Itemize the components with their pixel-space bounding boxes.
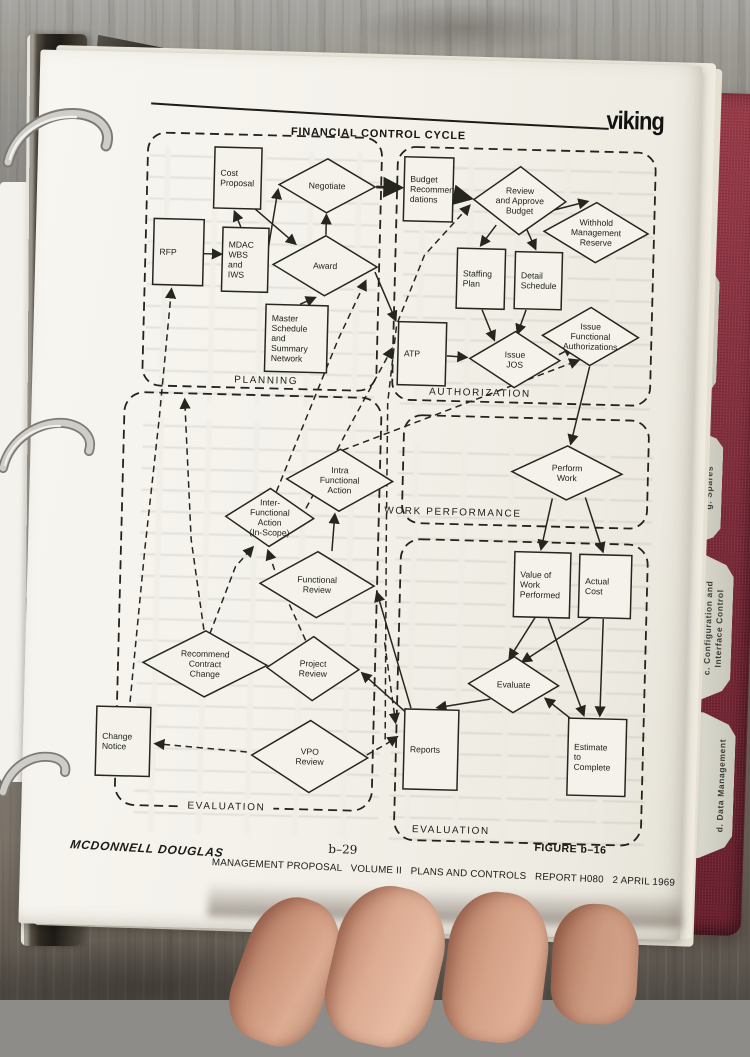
flow-arrow	[326, 215, 327, 235]
finger	[549, 902, 641, 1026]
node-label-issue_jos: IssueJOS	[504, 349, 525, 370]
flow-arrow	[374, 592, 414, 708]
flow-arrow	[234, 211, 241, 227]
section-label-work-performance: WORK PERFORMANCE	[384, 505, 522, 519]
flow-arrow	[130, 288, 171, 703]
flow-arrow	[509, 617, 535, 660]
flow-arrow	[481, 310, 495, 340]
flow-arrow	[454, 195, 471, 198]
footer-page-number: b–29	[328, 842, 357, 857]
flow-arrow	[545, 698, 574, 720]
node-label-reports: Reports	[410, 744, 440, 755]
viking-logo: viking	[606, 105, 664, 136]
flow-arrow	[155, 744, 247, 752]
node-label-negotiate: Negotiate	[309, 180, 346, 191]
header-rule	[151, 103, 609, 129]
flow-arrow	[517, 310, 526, 334]
section-label-evaluation-left: EVALUATION	[187, 800, 265, 813]
flow-arrow	[332, 514, 335, 551]
section-label-evaluation-right: EVALUATION	[412, 824, 490, 837]
document-page: CostProposalRFPMDACWBSandIWSMasterSchedu…	[18, 50, 702, 940]
tab-label: c. Configuration and Interface Control	[701, 580, 726, 675]
node-label-evaluate: Evaluate	[497, 679, 531, 690]
node-label-atp: ATP	[404, 348, 421, 358]
flow-arrow	[300, 297, 315, 304]
flowchart-figure: CostProposalRFPMDACWBSandIWSMasterSchedu…	[18, 50, 702, 940]
flow-arrow	[447, 356, 467, 358]
tab-label: d. Data Management	[714, 739, 728, 833]
flow-arrow	[210, 546, 253, 635]
flow-arrow	[437, 698, 490, 709]
flow-nodes: CostProposalRFPMDACWBSandIWSMasterSchedu…	[95, 144, 650, 800]
flow-arrow	[367, 736, 397, 756]
flow-arrow	[481, 225, 497, 246]
flow-arrow	[541, 498, 552, 549]
section-label-planning: PLANNING	[234, 375, 298, 388]
flow-arrow	[179, 399, 210, 630]
flow-arrow	[376, 187, 401, 188]
node-label-award: Award	[313, 260, 338, 271]
section-label-authorization: AUTHORIZATION	[429, 386, 531, 400]
flow-arrow	[600, 619, 603, 716]
node-label-project_review: ProjectReview	[299, 658, 328, 679]
node-label-rfp: RFP	[159, 247, 177, 257]
